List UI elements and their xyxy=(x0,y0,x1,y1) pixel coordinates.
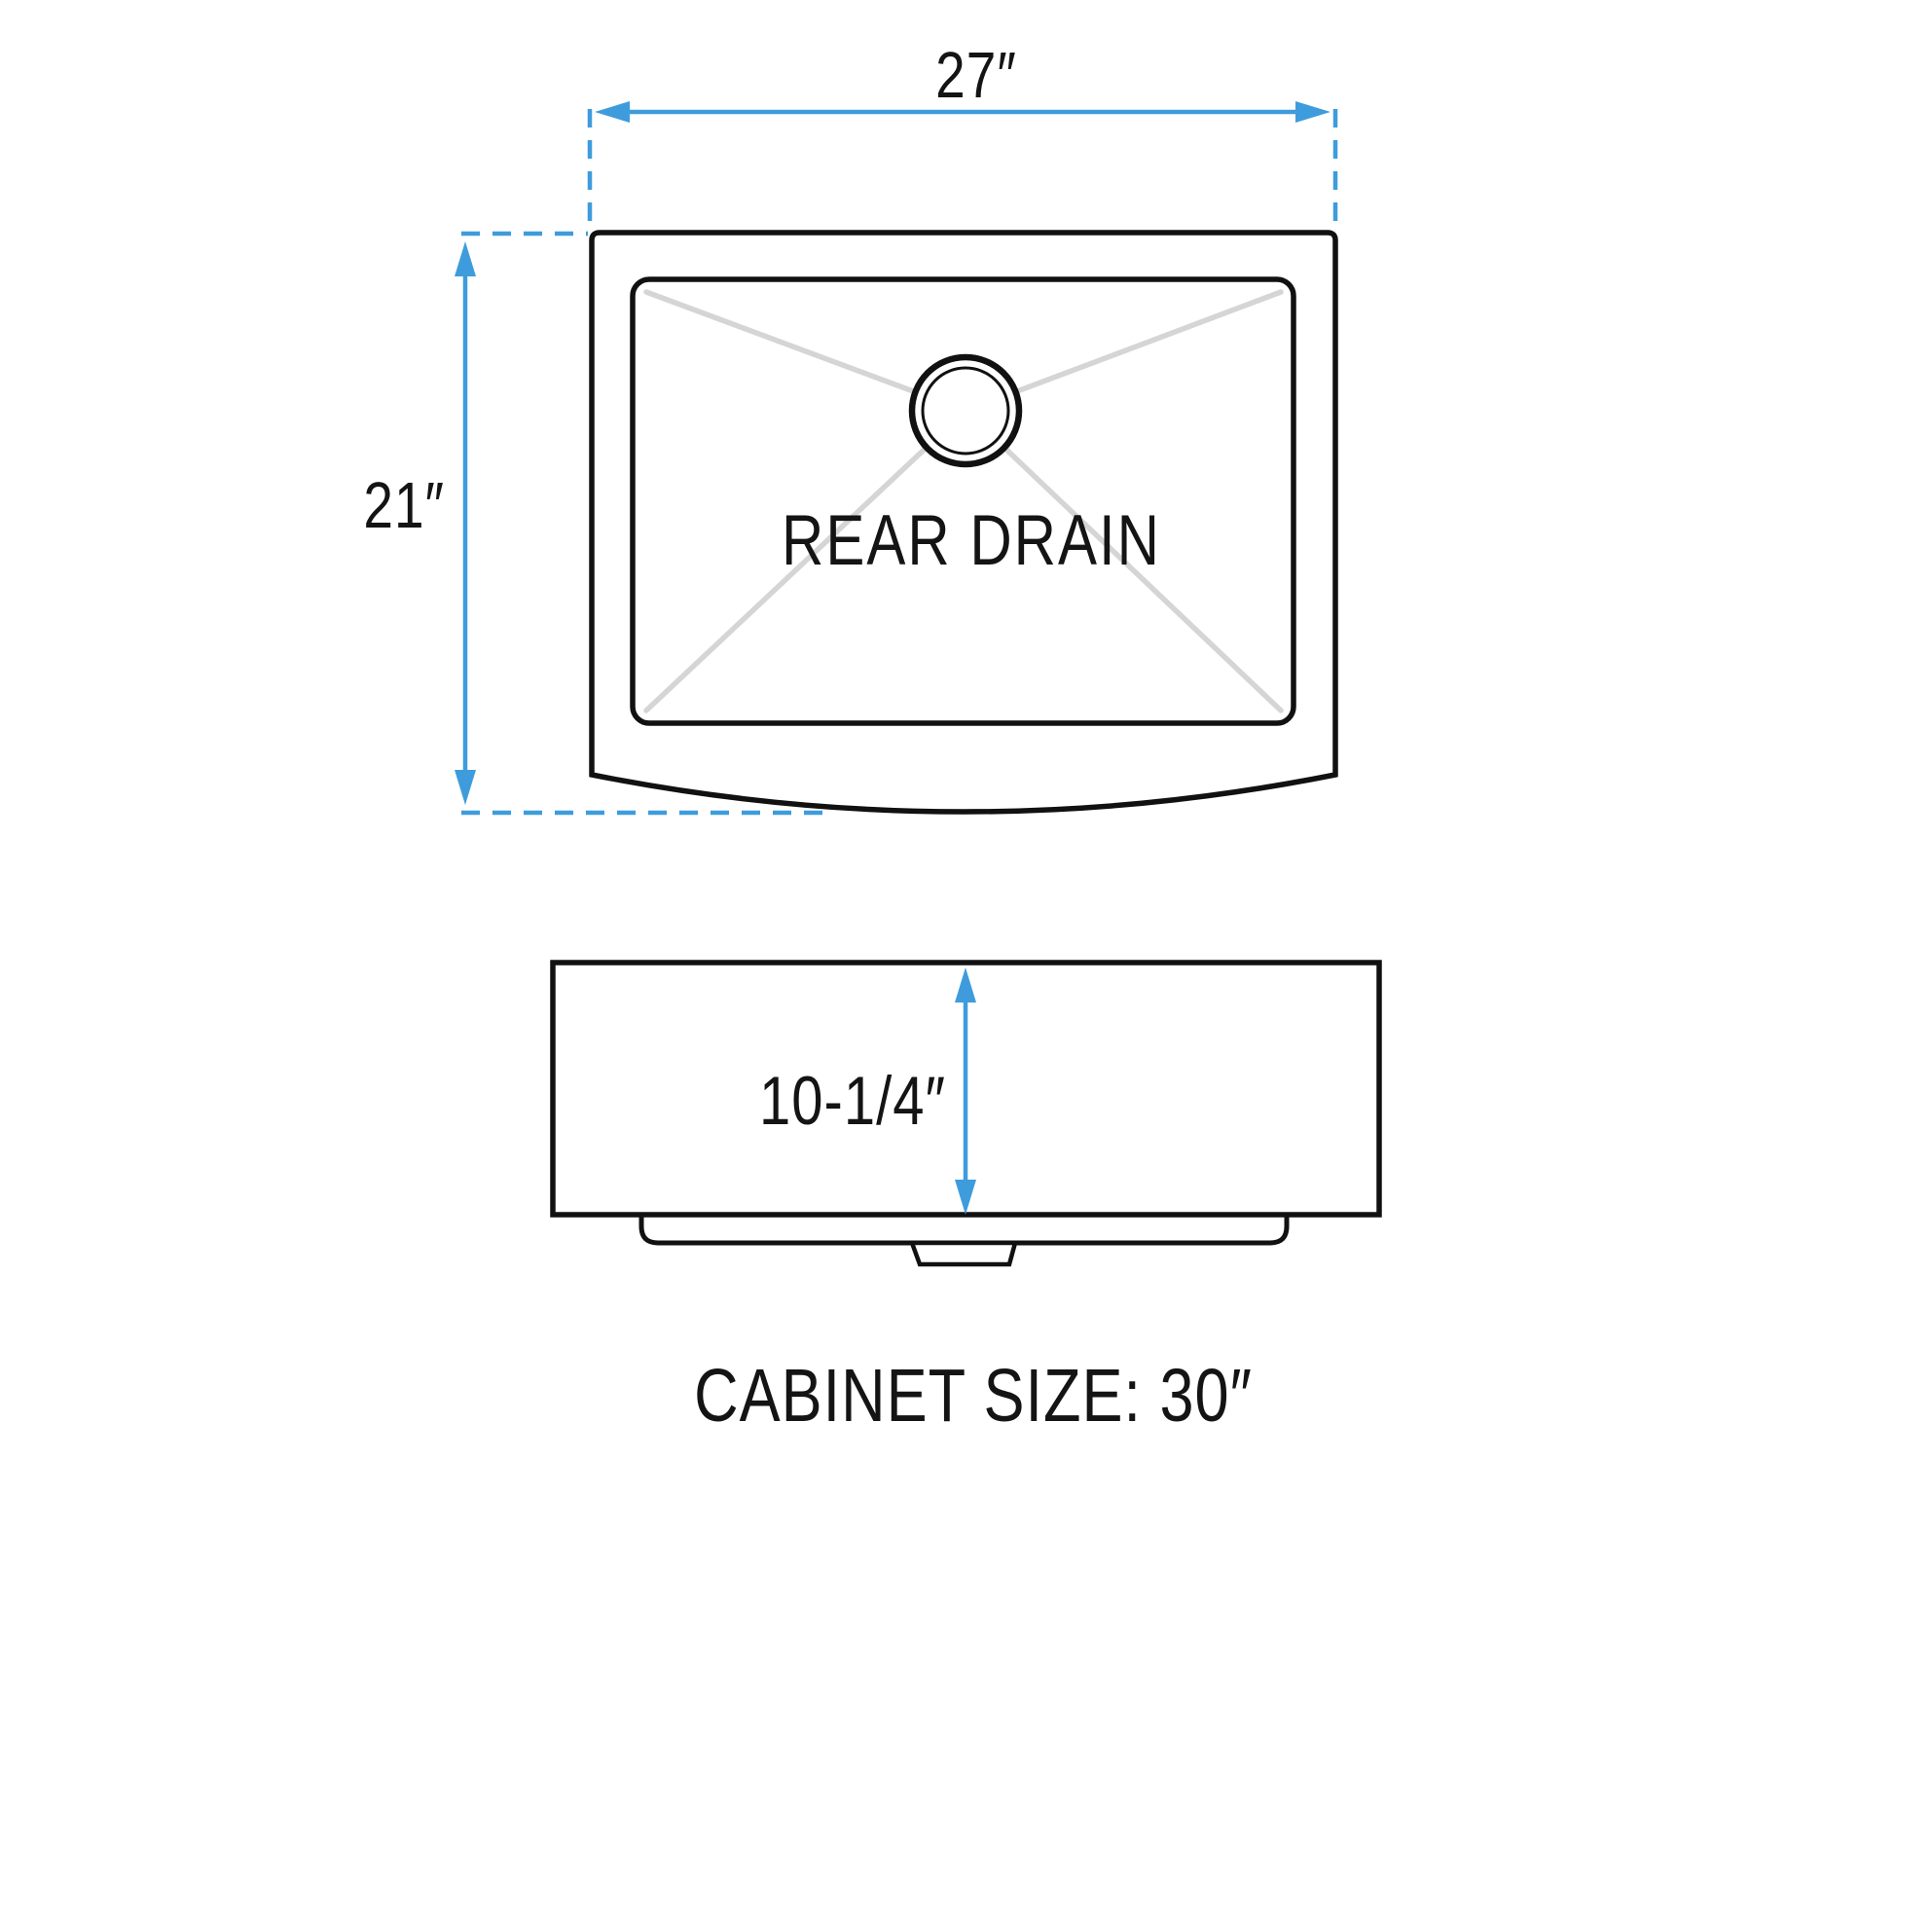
drain-outer-ring xyxy=(912,357,1019,464)
sink-top-view: REAR DRAIN xyxy=(592,233,1335,812)
width-dimension-label: 27″ xyxy=(935,38,1017,111)
arrowhead-right-icon xyxy=(1295,101,1331,123)
depth-dimension-label: 21″ xyxy=(363,468,445,541)
drain-fitting xyxy=(912,1243,1015,1264)
rear-drain-label: REAR DRAIN xyxy=(782,500,1161,580)
width-dimension: 27″ xyxy=(590,38,1335,225)
arrowhead-left-icon xyxy=(595,101,630,123)
arrowhead-down-icon xyxy=(455,770,476,805)
sink-side-view: 10-1/4″ xyxy=(553,963,1379,1264)
arrowhead-up-icon xyxy=(455,241,476,276)
sink-dimension-diagram: 27″ 21″ REAR DRAIN xyxy=(0,0,1932,1932)
diagram-svg: 27″ 21″ REAR DRAIN xyxy=(0,0,1932,1932)
apron-bottom-lip xyxy=(641,1215,1287,1243)
cabinet-size-caption: CABINET SIZE: 30″ xyxy=(694,1353,1253,1437)
height-dimension-label: 10-1/4″ xyxy=(759,1061,946,1139)
